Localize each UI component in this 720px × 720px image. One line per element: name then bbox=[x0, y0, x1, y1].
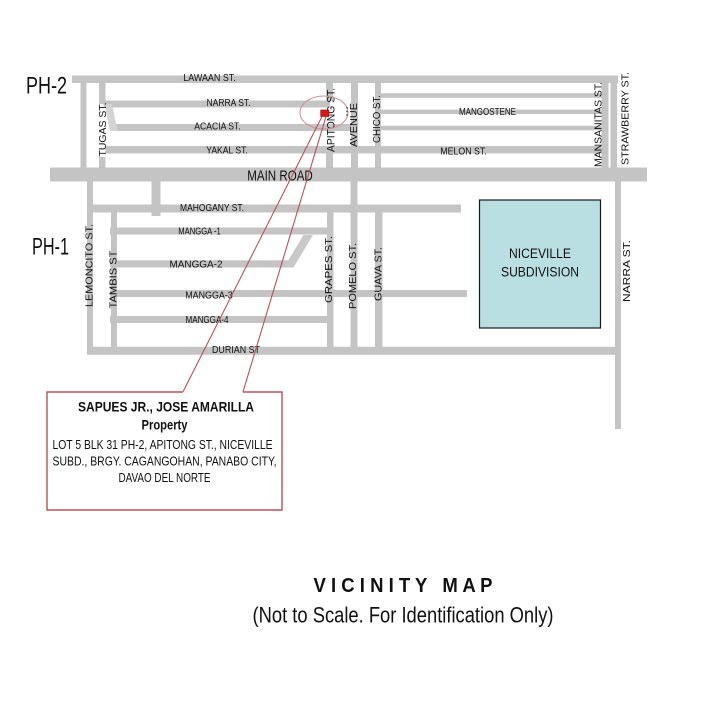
svg-text:TAMBIS ST: TAMBIS ST bbox=[109, 251, 120, 309]
svg-text:MANGGA-2: MANGGA-2 bbox=[170, 259, 223, 270]
svg-text:AVENUE: AVENUE bbox=[348, 103, 360, 147]
svg-text:NARRA ST.: NARRA ST. bbox=[207, 98, 251, 109]
svg-text:LEMONCITO ST.: LEMONCITO ST. bbox=[85, 224, 96, 307]
svg-text:LOT 5 BLK 31 PH-2, APITONG ST.: LOT 5 BLK 31 PH-2, APITONG ST., NICEVILL… bbox=[53, 437, 273, 452]
svg-text:MAIN ROAD: MAIN ROAD bbox=[247, 169, 313, 185]
svg-text:PH-1: PH-1 bbox=[32, 234, 69, 261]
svg-text:MANGOSTENE: MANGOSTENE bbox=[459, 107, 516, 118]
svg-text:NARRA ST.: NARRA ST. bbox=[622, 240, 633, 302]
svg-text:PH-2: PH-2 bbox=[26, 73, 67, 100]
svg-text:MANGGA -1: MANGGA -1 bbox=[178, 227, 221, 238]
svg-text:DAVAO DEL NORTE: DAVAO DEL NORTE bbox=[119, 470, 211, 485]
svg-text:Property: Property bbox=[142, 417, 188, 433]
svg-text:SUBD., BRGY. CAGANGOHAN, PANAB: SUBD., BRGY. CAGANGOHAN, PANABO CITY, bbox=[53, 454, 277, 469]
svg-text:POMELO ST.: POMELO ST. bbox=[348, 243, 359, 309]
svg-text:MAHOGANY ST.: MAHOGANY ST. bbox=[180, 203, 244, 214]
svg-text:MANGGA-3: MANGGA-3 bbox=[185, 291, 233, 302]
svg-text:CHICO ST.: CHICO ST. bbox=[371, 95, 383, 143]
svg-text:V I C I N I T Y M A P: V I C I N I T Y M A P bbox=[314, 574, 493, 597]
svg-text:SUBDIVISION: SUBDIVISION bbox=[501, 265, 579, 280]
svg-text:MANSANITAS ST.: MANSANITAS ST. bbox=[594, 82, 605, 167]
svg-text:GRAPES ST.: GRAPES ST. bbox=[324, 236, 335, 303]
svg-text:NICEVILLE: NICEVILLE bbox=[509, 246, 571, 261]
svg-text:MANGGA-4: MANGGA-4 bbox=[186, 315, 229, 326]
svg-text:GUAVA ST.: GUAVA ST. bbox=[374, 247, 385, 301]
svg-text:MELON ST.: MELON ST. bbox=[440, 147, 487, 158]
svg-text:YAKAL ST.: YAKAL ST. bbox=[206, 146, 248, 157]
svg-text:(Not to Scale. For Identificat: (Not to Scale. For Identification Only) bbox=[253, 602, 554, 627]
svg-text:ACACIA ST.: ACACIA ST. bbox=[194, 122, 241, 133]
svg-text:STRAWBERRY ST.: STRAWBERRY ST. bbox=[621, 72, 632, 165]
svg-text:SAPUES JR., JOSE AMARILLA: SAPUES JR., JOSE AMARILLA bbox=[78, 399, 254, 415]
svg-text:TUGAS ST.: TUGAS ST. bbox=[98, 103, 109, 157]
svg-text:LAWAAN ST.: LAWAAN ST. bbox=[183, 73, 236, 84]
svg-text:DURIAN ST: DURIAN ST bbox=[212, 345, 260, 356]
